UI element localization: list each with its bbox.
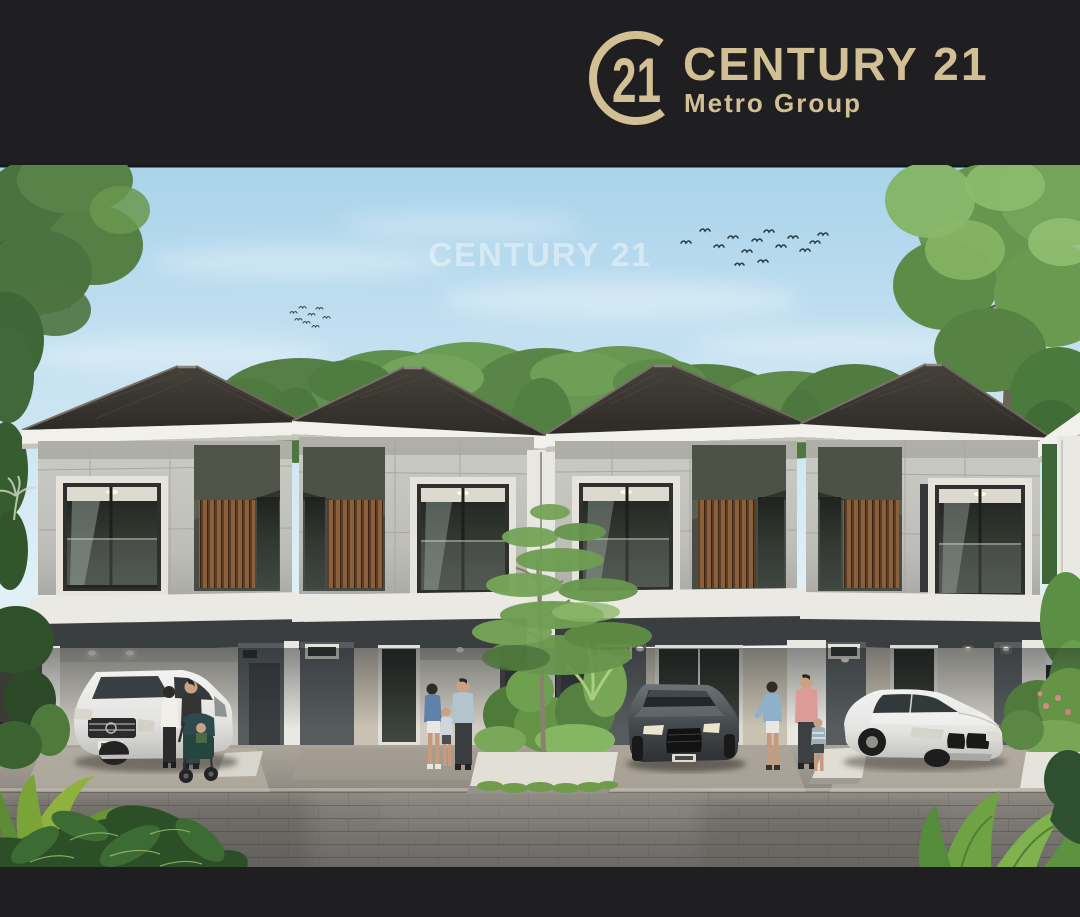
svg-text:21: 21	[612, 45, 661, 116]
svg-text:CENTURY 21: CENTURY 21	[428, 236, 652, 273]
svg-text:CENTURY 21: CENTURY 21	[683, 38, 989, 90]
svg-text:Metro Group: Metro Group	[684, 88, 862, 118]
